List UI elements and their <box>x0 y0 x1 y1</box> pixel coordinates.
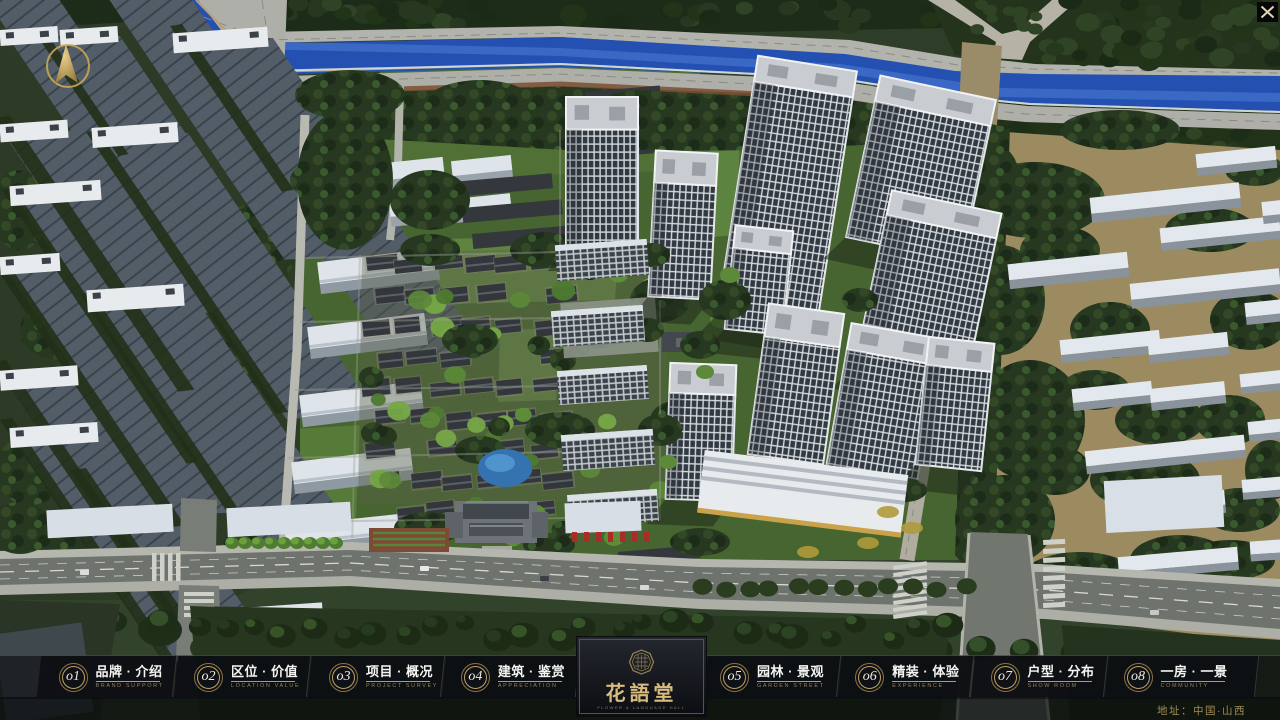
svg-text:FLOWER & LANGUAGE HALL: FLOWER & LANGUAGE HALL <box>597 705 685 710</box>
svg-text:花語堂: 花語堂 <box>606 681 678 705</box>
